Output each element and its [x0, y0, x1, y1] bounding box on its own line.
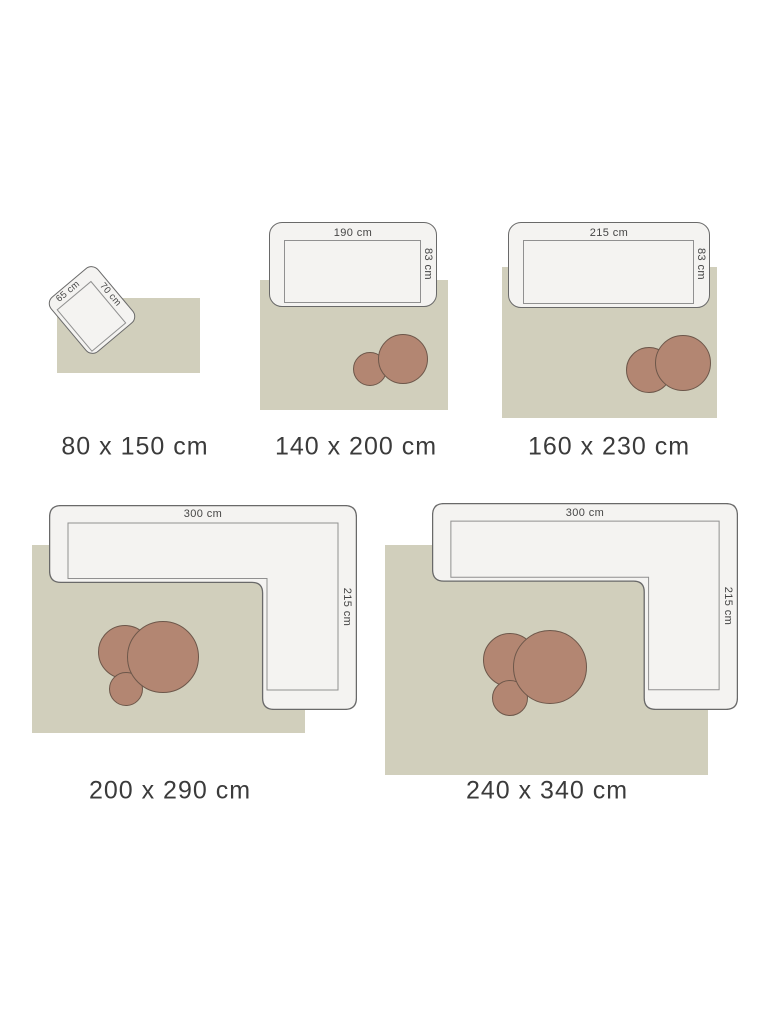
coffee-table-large — [127, 621, 199, 693]
size-label-240x340: 240 x 340 cm — [466, 777, 628, 806]
sofa-190-seat-line — [284, 240, 421, 303]
size-label-200x290: 200 x 290 cm — [89, 777, 251, 806]
coffee-table-large — [655, 335, 711, 391]
coffee-table-large — [378, 334, 428, 384]
corner-sofa-depth-label: 215 cm — [722, 587, 734, 625]
corner-sofa-outline — [50, 506, 357, 710]
size-label-140x200: 140 x 200 cm — [275, 433, 437, 462]
rug-size-guide: 65 cm 70 cm 80 x 150 cm 190 cm 83 cm 140… — [0, 0, 768, 1024]
size-label-80x150: 80 x 150 cm — [61, 433, 208, 462]
corner-sofa-depth-label: 215 cm — [341, 588, 353, 626]
corner-sofa-width-label: 300 cm — [566, 507, 604, 519]
sofa-215-seat-line — [523, 240, 694, 304]
sofa-190-depth-label: 83 cm — [422, 248, 434, 280]
coffee-table-large — [513, 630, 587, 704]
sofa-190-width-label: 190 cm — [334, 227, 372, 239]
sofa-215-width-label: 215 cm — [590, 227, 628, 239]
corner-sofa-shape — [49, 505, 357, 710]
sofa-215-depth-label: 83 cm — [695, 248, 707, 280]
corner-sofa-width-label: 300 cm — [184, 508, 222, 520]
size-label-160x230: 160 x 230 cm — [528, 433, 690, 462]
